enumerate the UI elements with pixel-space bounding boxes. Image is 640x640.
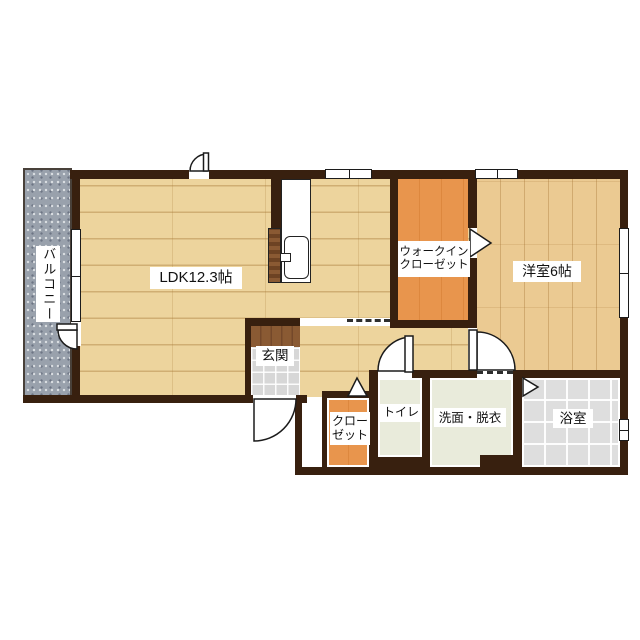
open-boundary-washroom (477, 370, 513, 378)
closet-label-line2: ゼット (332, 429, 368, 442)
wall-wic-west (390, 179, 398, 328)
wall-service-west (295, 395, 302, 475)
door-swing-top-exterior (190, 154, 207, 171)
closet-label: クロー ゼット (330, 412, 370, 445)
wall-wic-south (390, 320, 477, 328)
wall-right (620, 170, 628, 228)
window-top-hall (325, 169, 372, 179)
window-western-room-east (619, 228, 629, 318)
door-leaf-top-exterior (204, 153, 209, 171)
wall-top (70, 170, 189, 179)
western-room-label: 洋室6帖 (513, 261, 581, 282)
wall-kitchen-stub (271, 179, 281, 230)
wall-top (518, 170, 628, 179)
bathroom-label: 浴室 (553, 409, 593, 428)
wall-toilet-washroom (422, 378, 430, 467)
walk-in-closet-label: ウォークイン クローゼット (398, 241, 470, 277)
wall-ldk-hall (245, 318, 300, 326)
window-top-western-room (475, 169, 518, 179)
wall-ldk-balcony (72, 170, 80, 230)
wall-entrance-west (245, 318, 251, 397)
door-swing-entrance (254, 399, 296, 441)
wall-closet-east (369, 370, 378, 467)
washroom-label: 洗面・脱衣 (434, 408, 506, 427)
wall-bottom (23, 395, 253, 403)
doorway-top-exterior (189, 170, 209, 179)
wall-closet-west (322, 398, 327, 467)
window-balcony-sliding (71, 229, 81, 322)
doorway-balcony (71, 322, 81, 346)
toilet-label: トイレ (380, 404, 422, 422)
open-boundary-ldk-hall (347, 318, 390, 326)
walk-in-closet-label-line2: クローゼット (400, 259, 469, 272)
opening-ldk-hall (300, 318, 347, 326)
wall-bottom-service (295, 467, 628, 475)
wall-wic-east (468, 179, 477, 228)
wall-top (209, 170, 325, 179)
wall-toilet-south (373, 457, 430, 467)
entrance-step-board (251, 326, 300, 347)
ldk-label: LDK12.3帖 (150, 267, 242, 289)
walk-in-closet-label-line1: ウォークイン (400, 246, 469, 259)
wall-washroom-bath (513, 378, 522, 467)
balcony-label: バルコニー (36, 246, 60, 322)
wall-service-north (412, 370, 477, 378)
kitchen-cabinet (268, 228, 281, 283)
doorway-entrance (253, 395, 296, 403)
floor-plan: バルコニー LDK12.3帖 ウォークイン クローゼット 洋室6帖 玄関 クロー… (0, 0, 640, 640)
wall-washroom-notch (480, 455, 513, 467)
entrance-label: 玄関 (256, 346, 294, 366)
window-bathroom-vent (619, 419, 629, 441)
doorway-western-room (468, 328, 477, 370)
wall-top (372, 170, 475, 179)
doorway-toilet (378, 370, 412, 378)
wall-service-north (513, 370, 628, 378)
closet-label-line1: クロー (332, 415, 368, 428)
wall-right (620, 318, 628, 420)
